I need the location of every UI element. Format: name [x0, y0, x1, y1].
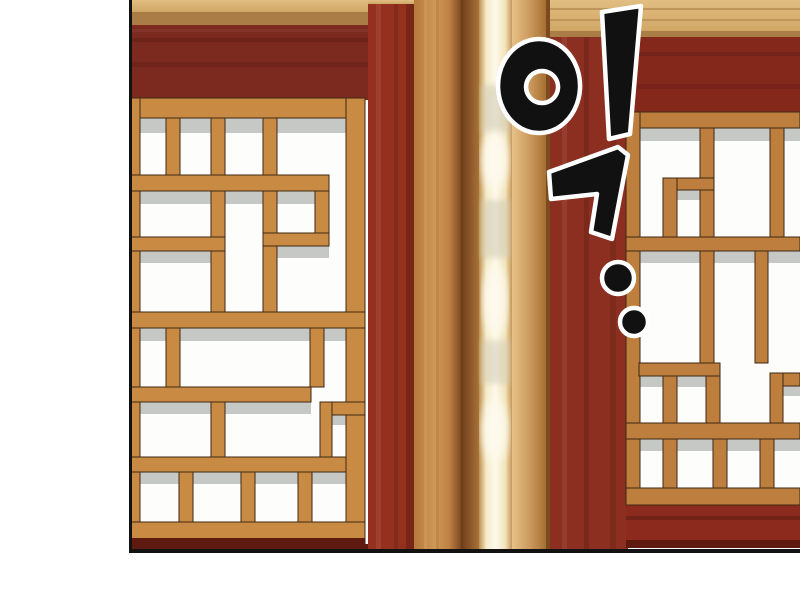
- wall-grain: [628, 52, 800, 56]
- wall-grain: [131, 29, 368, 32]
- light-blob: [482, 132, 508, 188]
- comic-panel-art: [0, 0, 800, 600]
- wall-grain: [131, 38, 368, 42]
- door-recess: [461, 0, 479, 552]
- pillar-grain: [424, 0, 427, 552]
- panel-border-bottom: [129, 549, 800, 553]
- blurred-silhouette: [481, 340, 510, 384]
- wall-grain: [628, 84, 800, 89]
- red-wall-right: [628, 37, 800, 112]
- left-window-sill: [131, 538, 365, 544]
- comic-panel-page: 익!: [0, 0, 800, 600]
- light-blob: [483, 266, 507, 334]
- sill-shadow: [626, 540, 800, 548]
- panel-content: [131, 0, 800, 552]
- beam-grain: [550, 8, 800, 10]
- blurred-silhouette: [481, 200, 510, 258]
- panel-border-left: [129, 0, 132, 553]
- wall-grain: [406, 4, 414, 552]
- sfx-dot: [620, 308, 648, 336]
- top-beam-left: [131, 0, 368, 12]
- pillar-grain: [436, 0, 439, 552]
- sfx-dot: [602, 262, 634, 294]
- top-beam-left-edge: [131, 12, 368, 25]
- left-lattice-window: [131, 98, 365, 544]
- beam-grain: [550, 19, 800, 21]
- wall-grain: [131, 62, 368, 67]
- beam-seam: [550, 31, 800, 37]
- sill-grain: [626, 516, 800, 520]
- wall-grain: [584, 37, 589, 552]
- top-beam-right: [550, 0, 800, 31]
- wall-grain: [376, 4, 381, 552]
- light-blob: [482, 400, 508, 460]
- right-lattice-window: [626, 112, 800, 505]
- beam-sliver: [368, 0, 414, 4]
- wall-grain: [394, 4, 398, 552]
- left-wall-section: [131, 0, 368, 100]
